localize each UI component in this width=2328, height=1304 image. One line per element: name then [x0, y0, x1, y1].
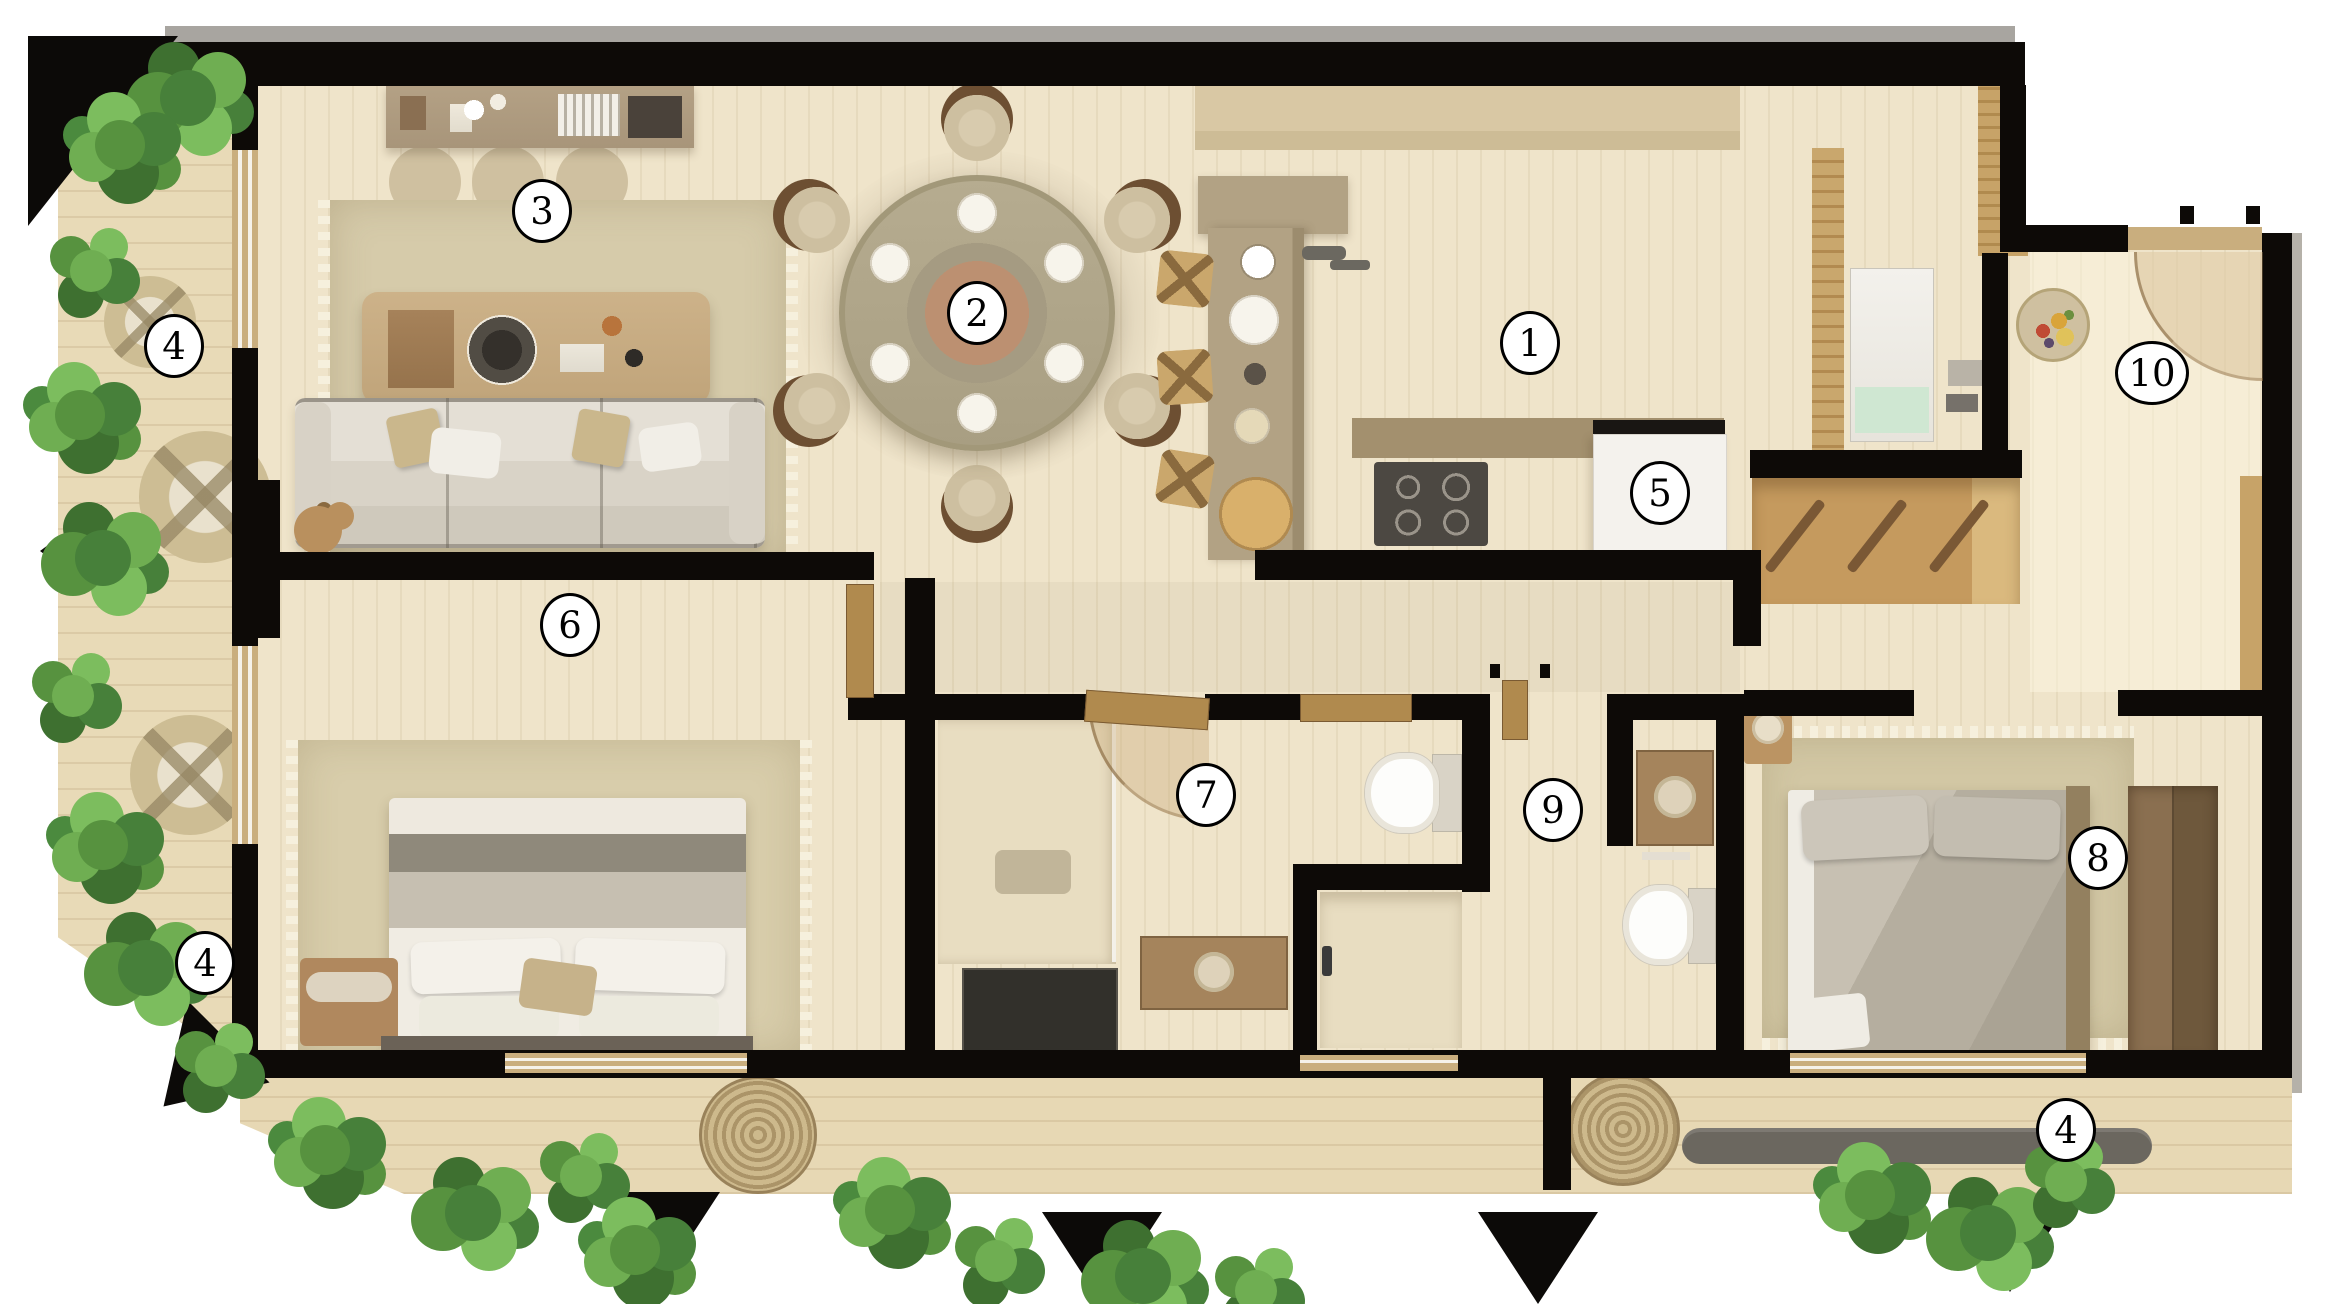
toilet-bowl [1622, 884, 1694, 966]
plant-bush-icon [1960, 1205, 2016, 1261]
shower-tray-dark [962, 968, 1118, 1060]
vanity-sink [1140, 936, 1288, 1010]
window [1790, 1053, 2086, 1073]
floor-plan-canvas: 1 2 3 4 4 4 5 6 7 8 9 10 [0, 0, 2328, 1304]
door-leaf-wc [1300, 694, 1412, 722]
washing-machine [1850, 268, 1934, 442]
teddy-bear [294, 506, 342, 554]
plant-bush-icon [195, 1045, 237, 1087]
basket [1566, 1072, 1680, 1186]
wall-bedroom2-top-b [2118, 690, 2262, 716]
direction-arrow [1478, 1212, 1598, 1304]
plant-bush-icon [75, 530, 131, 586]
window [505, 1053, 747, 1073]
wall-bedroom1-right [905, 578, 935, 1060]
plant-bush-icon [975, 1240, 1017, 1282]
tray [1752, 712, 1784, 744]
upper-cabinet-band [1195, 86, 1740, 150]
dining-chair [784, 373, 850, 439]
plant-bush-icon [55, 390, 105, 440]
bar-stool [1156, 348, 1214, 406]
pillow [1801, 795, 1930, 862]
room-label-terrace-upper-left: 4 [144, 314, 204, 378]
faucet-icon [1302, 246, 1346, 260]
plant-bush-icon [560, 1155, 602, 1197]
dining-chair [944, 465, 1010, 531]
kitchen-island-top [1198, 176, 1348, 234]
bar-stool [1155, 249, 1214, 308]
wall-shower-left [1293, 864, 1317, 1060]
plant-bush-icon [610, 1225, 660, 1275]
wall-entry-stub [1733, 550, 1761, 646]
wall-bedroom2-top-a [1744, 690, 1914, 716]
wall-wc-bottom [1293, 864, 1463, 890]
laundry-cabinet-band [1812, 148, 1844, 460]
toilet-bowl [1364, 752, 1440, 834]
door-leaf-hall9 [1502, 680, 1528, 740]
room-label-bedroom-1: 6 [540, 593, 600, 657]
room-label-bedroom-2: 8 [2068, 826, 2128, 890]
pillow [518, 957, 598, 1017]
rug-fringe [800, 740, 812, 1052]
room-label-entry-hall: 10 [2115, 341, 2189, 405]
door-jamb [2246, 206, 2260, 224]
door-jamb [1540, 664, 1550, 678]
wall-kitchen-bottom [1255, 550, 1733, 580]
bench-shadow [995, 850, 1071, 894]
room-label-bathroom-hallway: 9 [1523, 778, 1583, 842]
wall-entry-top [2000, 225, 2128, 252]
door-jamb [1490, 664, 1500, 678]
rug-fringe [1762, 726, 2134, 738]
plant-bush-icon [445, 1185, 501, 1241]
room-label-dining-table: 2 [947, 281, 1007, 345]
wall-right [2262, 233, 2292, 1078]
plant-bush-icon [160, 70, 216, 126]
rug-fringe [286, 740, 298, 1052]
entry-door-band [2128, 227, 2262, 250]
wall-bath3-left [1607, 694, 1633, 846]
wall-shelf [386, 84, 694, 148]
window [232, 646, 258, 844]
plant-bush-icon [865, 1185, 915, 1235]
wall-art-fruit-bowl [2016, 288, 2090, 362]
window [1300, 1055, 1458, 1071]
room-label-kitchen: 1 [1500, 311, 1560, 375]
toilet [1364, 750, 1464, 834]
shower-room-floor [938, 720, 1116, 964]
plant-bush-icon [1845, 1170, 1895, 1220]
dining-chair [784, 187, 850, 253]
sink-basin [1194, 952, 1234, 992]
plant-bush-icon [78, 820, 128, 870]
kitchen-island [1208, 228, 1304, 560]
wall-wc-right [1462, 694, 1490, 892]
towel [1642, 852, 1690, 860]
wall-living-bedroom [232, 552, 874, 580]
basket [699, 1076, 817, 1194]
plant-bush-icon [2045, 1160, 2087, 1202]
plant-bush-icon [1115, 1248, 1171, 1304]
plant-bush-icon [300, 1125, 350, 1175]
pillow [579, 996, 719, 1040]
room-label-hallway-dressing: 7 [1176, 763, 1236, 827]
throw-blanket [428, 426, 502, 479]
throw-blanket [637, 421, 703, 473]
entry-side-panel [2240, 476, 2262, 702]
pillow [574, 937, 726, 994]
wall-terrace-divider [1543, 1078, 1571, 1190]
coat-hanger-icon [1846, 498, 1908, 574]
building-notch [2024, 0, 2328, 233]
wall-laundry-divider [1982, 253, 2008, 463]
wall-top [45, 42, 2025, 86]
window [232, 150, 258, 348]
wall-hall-top-a [848, 694, 1088, 720]
pillow [1933, 796, 2061, 860]
coat-closet [1752, 478, 2020, 604]
toilet [1622, 882, 1718, 966]
room-label-terrace-lower-left: 4 [175, 931, 235, 995]
corridor-floor [880, 582, 1740, 692]
coat-hanger-icon [1764, 498, 1826, 574]
room-label-refrigerator: 5 [1630, 461, 1690, 525]
bar-stool [1154, 448, 1216, 510]
bolster-cushion [306, 972, 392, 1002]
room-label-terrace-bottom-right: 4 [2036, 1098, 2096, 1162]
coffee-table [362, 292, 710, 404]
bedside-bench [300, 958, 398, 1046]
sink-basin [1654, 776, 1696, 818]
dining-chair [1104, 187, 1170, 253]
bed [389, 798, 746, 1058]
right-shadow [2292, 233, 2302, 1093]
refrigerator-top [1593, 420, 1725, 434]
vanity-sink [1636, 750, 1714, 846]
plant-bush-icon [118, 940, 174, 996]
stove [1374, 462, 1488, 546]
door-leaf-bedroom1 [846, 584, 874, 698]
shower-room-2-floor [1320, 892, 1462, 1048]
wardrobe [2128, 786, 2218, 1062]
sheet-fold [1793, 992, 1870, 1053]
sofa [295, 398, 765, 548]
pillow [571, 408, 631, 468]
dining-chair [944, 95, 1010, 161]
plant-bush-icon [52, 675, 94, 717]
bed [1788, 790, 2090, 1056]
plant-bush-icon [95, 120, 145, 170]
door-jamb [2180, 206, 2194, 224]
plant-bush-icon [1235, 1270, 1277, 1304]
room-label-living-room: 3 [512, 179, 572, 243]
sofa-armrest [729, 402, 765, 544]
plant-bush-icon [70, 250, 112, 292]
wall-bath3-right [1716, 694, 1744, 1060]
door-handle [1322, 946, 1332, 976]
coat-hanger-icon [1928, 498, 1990, 574]
